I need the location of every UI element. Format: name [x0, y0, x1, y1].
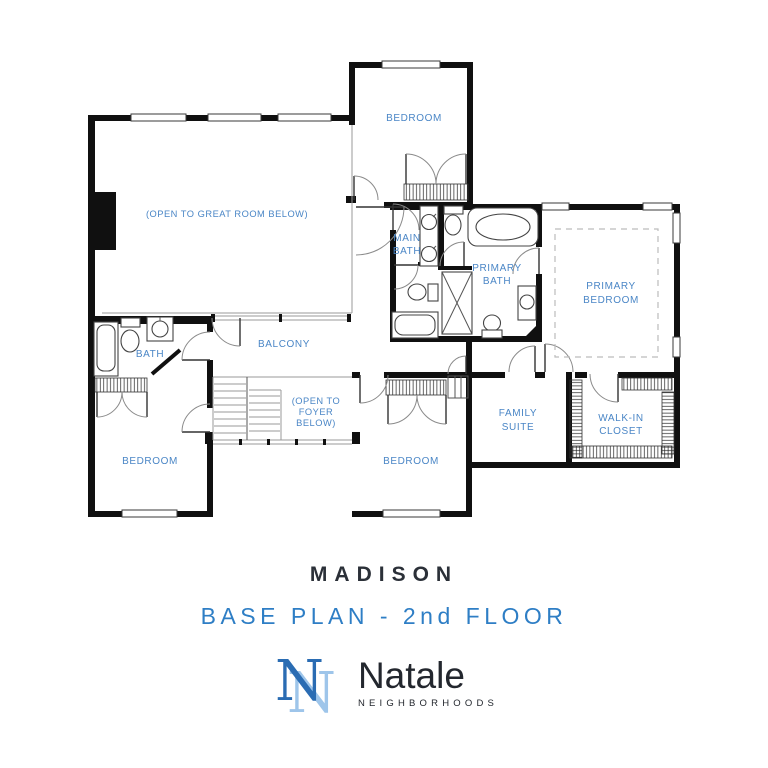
room-label-walk-in-closet-line1: WALK-IN: [598, 413, 644, 424]
room-label-main-bath-line2: BATH: [393, 246, 421, 257]
main-bath-fixtures: [392, 206, 438, 338]
room-label-bath: BATH: [136, 349, 164, 360]
room-label-primary-bath-line1: PRIMARY: [472, 263, 522, 274]
room-label-walk-in-closet-line2: CLOSET: [599, 426, 643, 437]
room-label-bedroom-top: BEDROOM: [386, 113, 442, 124]
brand-logo: N N Natale NEIGHBORHOODS: [0, 644, 768, 722]
page-title: MADISON: [0, 563, 768, 587]
tray-ceiling-outline: [555, 229, 658, 357]
room-label-open-great-room: (OPEN TO GREAT ROOM BELOW): [146, 209, 308, 219]
room-labels: BEDROOM (OPEN TO GREAT ROOM BELOW) MAIN …: [122, 113, 644, 467]
room-label-primary-bedroom-line2: BEDROOM: [583, 295, 639, 306]
room-label-main-bath-line1: MAIN: [393, 233, 420, 244]
water-closet-fixtures: [444, 206, 463, 235]
room-label-family-suite-line1: FAMILY: [499, 408, 537, 419]
natale-monogram-icon: N N: [270, 644, 350, 722]
room-label-balcony: BALCONY: [258, 339, 310, 350]
room-label-bedroom-left: BEDROOM: [122, 456, 178, 467]
room-label-primary-bath-line2: BATH: [483, 276, 511, 287]
room-label-primary-bedroom-line1: PRIMARY: [586, 281, 636, 292]
brand-name: Natale: [358, 657, 465, 694]
room-label-open-foyer-line3: BELOW): [296, 418, 336, 428]
page-subtitle: BASE PLAN - 2nd FLOOR: [0, 603, 768, 630]
monogram-letter-dark: N: [275, 649, 324, 714]
room-label-bedroom-middle: BEDROOM: [383, 456, 439, 467]
floor-plan-sheet: BEDROOM (OPEN TO GREAT ROOM BELOW) MAIN …: [0, 0, 768, 768]
brand-tagline: NEIGHBORHOODS: [358, 698, 498, 709]
room-label-open-foyer-line2: FOYER: [299, 407, 334, 417]
brand-text: Natale NEIGHBORHOODS: [358, 657, 498, 709]
title-block: MADISON BASE PLAN - 2nd FLOOR N N Natale…: [0, 545, 768, 722]
floor-plan-drawing: BEDROOM (OPEN TO GREAT ROOM BELOW) MAIN …: [0, 0, 768, 545]
room-label-family-suite-line2: SUITE: [502, 422, 534, 433]
room-label-open-foyer-line1: (OPEN TO: [292, 396, 341, 406]
